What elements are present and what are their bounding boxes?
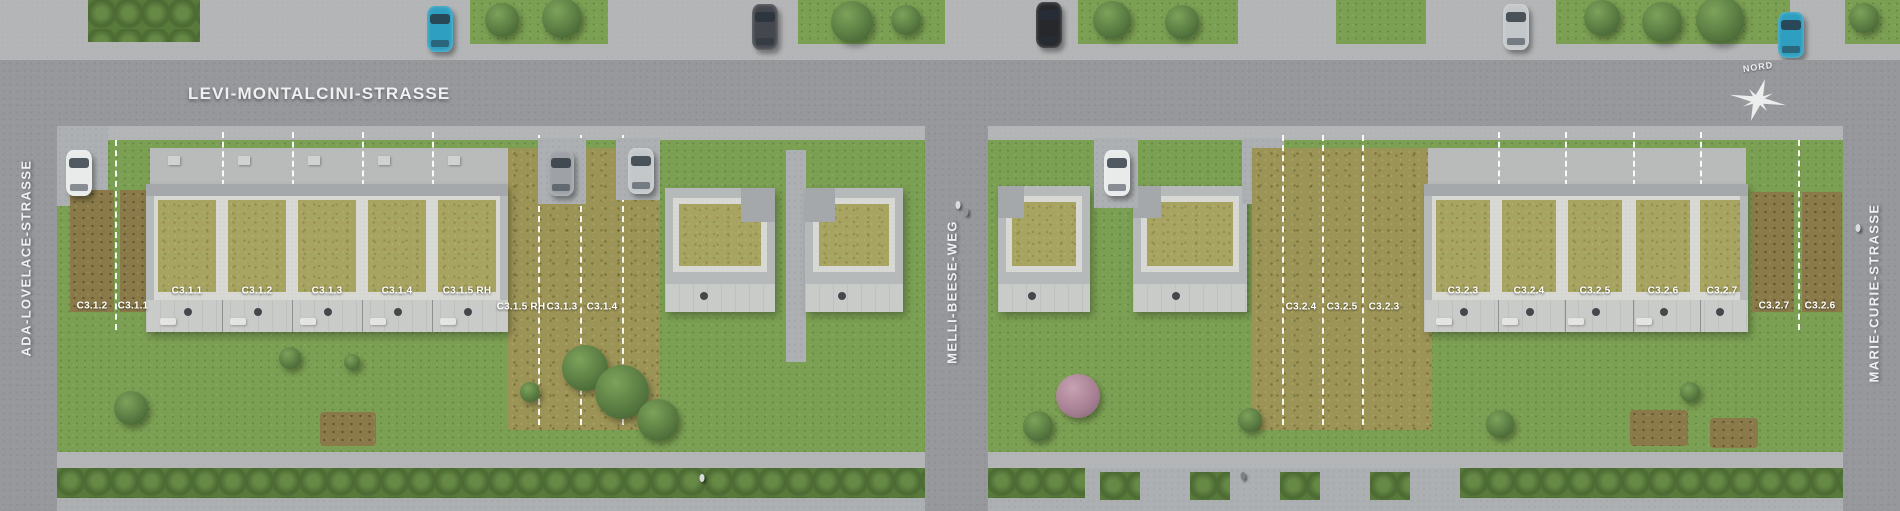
terrace-band (1133, 284, 1247, 312)
pedestrian (964, 208, 969, 216)
unit-label: C3.1.5 RH (497, 302, 546, 313)
top-verge (1336, 0, 1426, 44)
street-label-levi-montalcini: LEVI-MONTALCINI-STRASSE (188, 84, 450, 104)
compass-diagonal-points (1734, 83, 1782, 118)
green-roof-panel (1502, 200, 1556, 292)
property-line (1362, 135, 1364, 425)
bin (238, 156, 250, 165)
bin (168, 156, 180, 165)
planter (1436, 318, 1452, 325)
roof-parapet (1424, 184, 1748, 196)
green-roof-panel (1436, 200, 1490, 292)
unit-label: C3.1.1 (118, 301, 149, 312)
patio-table (838, 292, 846, 300)
car-window (1039, 10, 1059, 20)
tree (1093, 1, 1131, 39)
meadow-gardens (1252, 148, 1432, 430)
car-silver (628, 148, 654, 194)
unit-label: C3.1.2 (77, 301, 108, 312)
tree (485, 3, 519, 37)
terrace-band (146, 300, 508, 332)
patio-table (324, 308, 332, 316)
terrace-divider (292, 300, 293, 332)
car-window (1040, 36, 1058, 43)
roof-notch (998, 186, 1024, 218)
green-roof-panel (1700, 200, 1740, 292)
car-white (1104, 150, 1130, 196)
unit-label: C3.1.4 (587, 302, 618, 313)
terrace-divider (1700, 300, 1701, 332)
parking-hedge (1190, 472, 1230, 500)
property-line (1498, 132, 1500, 186)
unit-label: C3.1.2 (242, 286, 273, 297)
planting-patch (320, 412, 376, 446)
parking-hedge (1280, 472, 1320, 500)
car-window (1782, 46, 1800, 53)
terrace-band (805, 284, 903, 312)
unit-label: C3.2.5 (1327, 302, 1358, 313)
street-label-marie-curie: MARIE-CURIE-STRASSE (1867, 204, 1882, 383)
planting-patch (1710, 418, 1758, 448)
bush (344, 354, 360, 370)
planter (1502, 318, 1518, 325)
car-window (552, 184, 570, 191)
garden-bed (70, 190, 114, 312)
compass-rose: NORD (1722, 62, 1794, 128)
roof-notch (805, 188, 835, 222)
terrace-band (665, 284, 775, 312)
terrace-divider (1633, 300, 1634, 332)
blossom-tree (1056, 374, 1100, 418)
property-line (1700, 132, 1702, 186)
car-window (756, 38, 774, 45)
patio-table (464, 308, 472, 316)
bottom-pavement (57, 498, 925, 511)
bottom-hedge (1460, 468, 1843, 498)
bottom-hedge (988, 468, 1085, 498)
green-roof-panel (1568, 200, 1622, 292)
unit-label: C3.1.1 (172, 286, 203, 297)
bottom-path (57, 452, 925, 468)
car-window (1107, 158, 1127, 168)
unit-label: C3.2.5 (1580, 286, 1611, 297)
bush (1238, 408, 1262, 432)
tree (114, 391, 148, 425)
property-line (1798, 140, 1800, 330)
car-window (1108, 184, 1126, 191)
bush (1680, 382, 1700, 402)
property-line (1282, 135, 1284, 425)
patio-table (1716, 308, 1724, 316)
unit-label: C3.1.3 (312, 286, 343, 297)
patio-table (1526, 308, 1534, 316)
terrace-band (998, 284, 1090, 312)
roof-parapet (146, 184, 508, 196)
compass-star-icon (1723, 74, 1793, 126)
green-roof-panel (368, 200, 426, 292)
car-teal (427, 6, 453, 52)
car-window (755, 12, 775, 22)
tree (1849, 3, 1879, 33)
planter (230, 318, 246, 325)
bin (378, 156, 390, 165)
patio-table (1028, 292, 1036, 300)
unit-label: C3.2.7 (1707, 286, 1738, 297)
patio-table (1660, 308, 1668, 316)
unit-label: C3.2.3 (1369, 302, 1400, 313)
parking-hedge (1100, 472, 1140, 500)
car-silver (1503, 4, 1529, 50)
patio-table (184, 308, 192, 316)
car-white (66, 150, 92, 196)
green-roof-panel (158, 200, 216, 292)
top-hedge (88, 0, 200, 42)
terrace-divider (362, 300, 363, 332)
patio-table (254, 308, 262, 316)
pedestrian (1856, 224, 1861, 232)
unit-label: C3.2.3 (1448, 286, 1479, 297)
street-label-melli-beese: MELLI-BEESE-WEG (945, 220, 960, 364)
car-window (430, 14, 450, 24)
property-line (292, 132, 294, 186)
green-roof-panel (298, 200, 356, 292)
patio-table (700, 292, 708, 300)
patio-table (1592, 308, 1600, 316)
entrance-path (1428, 148, 1746, 186)
tree (831, 1, 873, 43)
bin (448, 156, 460, 165)
planter (1636, 318, 1652, 325)
car-window (551, 158, 571, 168)
unit-label: C3.2.4 (1286, 302, 1317, 313)
planter (300, 318, 316, 325)
property-line (1322, 135, 1324, 425)
terrace-divider (432, 300, 433, 332)
planter (1568, 318, 1584, 325)
car-blue (1778, 12, 1804, 58)
unit-label: C3.2.4 (1514, 286, 1545, 297)
street-label-ada-lovelace: ADA-LOVELACE-STRASSE (19, 159, 34, 356)
pedestrian (1241, 472, 1246, 480)
garden-bed (1802, 192, 1842, 312)
green-roof-panel (1636, 200, 1690, 292)
planter (370, 318, 386, 325)
pedestrian (700, 474, 705, 482)
tree (637, 399, 679, 441)
bottom-path (988, 452, 1843, 468)
entrance-path (150, 148, 508, 186)
pedestrian (956, 201, 961, 209)
car-window (632, 182, 650, 189)
bottom-pavement (1460, 498, 1843, 511)
patio-table (1460, 308, 1468, 316)
roof-notch (741, 188, 775, 222)
unit-label: C3.2.7 (1759, 301, 1790, 312)
terrace-divider (222, 300, 223, 332)
unit-label: C3.1.4 (382, 286, 413, 297)
unit-label: C3.2.6 (1805, 301, 1836, 312)
tree (1165, 5, 1199, 39)
bush (279, 347, 301, 369)
property-line (362, 132, 364, 186)
car-window (631, 156, 651, 166)
site-plan: C3.1.1 C3.1.2 C3.1.3 C3.1.4 C3.1.5 RH C3… (0, 0, 1900, 511)
car-window (1781, 20, 1801, 30)
planter (160, 318, 176, 325)
terrace-divider (1498, 300, 1499, 332)
bin (308, 156, 320, 165)
car-window (431, 40, 449, 47)
tree (1023, 411, 1053, 441)
compass-north-label: NORD (1742, 60, 1774, 74)
tree (1642, 2, 1682, 42)
car-dark (752, 4, 778, 50)
planter (440, 318, 456, 325)
property-line (1633, 132, 1635, 186)
sidewalk (57, 126, 925, 140)
parking-hedge (1370, 472, 1410, 500)
property-line (222, 132, 224, 186)
planting-patch (1630, 410, 1688, 446)
property-line (432, 132, 434, 186)
garden-bed (1752, 192, 1794, 312)
patio-table (394, 308, 402, 316)
property-line (1565, 132, 1567, 186)
terrace-divider (1565, 300, 1566, 332)
unit-label: C3.1.3 (547, 302, 578, 313)
unit-label: C3.2.6 (1648, 286, 1679, 297)
tree (891, 5, 921, 35)
bottom-hedge (57, 468, 925, 498)
car-window (1506, 12, 1526, 22)
side-path (786, 150, 806, 362)
bottom-pavement (988, 498, 1085, 511)
car-window (70, 184, 88, 191)
unit-label: C3.1.5 RH (443, 286, 492, 297)
bush (1486, 410, 1514, 438)
car-window (1507, 38, 1525, 45)
tree (1584, 0, 1620, 36)
car-black (1036, 2, 1062, 48)
patio-table (1172, 292, 1180, 300)
car-window (69, 158, 89, 168)
bush (520, 382, 540, 402)
green-roof-panel (438, 200, 496, 292)
green-roof-panel (228, 200, 286, 292)
car-gray (548, 150, 574, 196)
